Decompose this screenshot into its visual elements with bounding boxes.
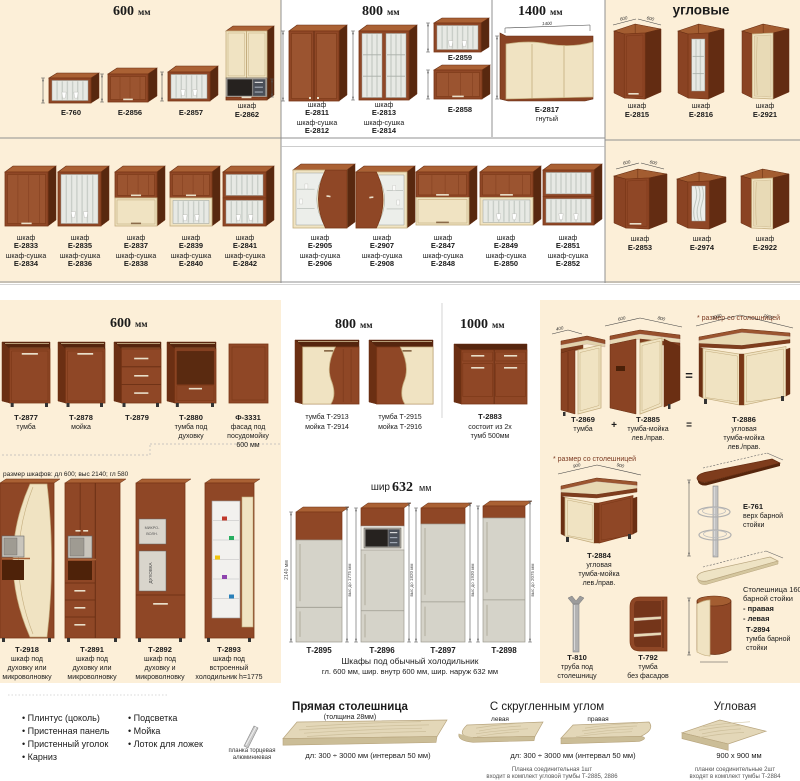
svg-text:Е-2859: Е-2859 [448, 53, 472, 62]
svg-text:мм: мм [492, 320, 505, 330]
svg-text:=: = [685, 368, 693, 383]
svg-text:шкаф под: шкаф под [144, 656, 176, 663]
svg-text:- правая: - правая [743, 604, 774, 613]
svg-text:* размер со столешницей: * размер со столешницей [553, 455, 636, 463]
svg-text:Ф-3331: Ф-3331 [235, 413, 261, 422]
svg-text:800: 800 [335, 317, 356, 332]
svg-text:верх барной: верх барной [743, 512, 783, 520]
svg-text:Е-2848: Е-2848 [431, 259, 455, 268]
svg-text:дл: 300 ÷ 3000 мм (интервал 50: дл: 300 ÷ 3000 мм (интервал 50 мм) [510, 751, 636, 760]
svg-text:Т-2884: Т-2884 [587, 551, 612, 560]
svg-text:Т-2918: Т-2918 [15, 645, 39, 654]
svg-text:Е-2905: Е-2905 [308, 241, 332, 250]
svg-text:Е-2812: Е-2812 [305, 126, 329, 135]
svg-text:лев./прав.: лев./прав. [632, 435, 665, 442]
svg-text:микроволновку: микроволновку [67, 674, 117, 681]
svg-text:Т-2898: Т-2898 [491, 646, 517, 655]
svg-text:Т-2894: Т-2894 [746, 625, 771, 634]
svg-text:духовку или: духовку или [7, 665, 46, 672]
svg-text:600: 600 [113, 4, 134, 19]
svg-text:входят в комплект тумбы Т-2884: входят в комплект тумбы Т-2884 [690, 774, 782, 780]
svg-text:входит в комплект угловой тумб: входит в комплект угловой тумбы Т-2885, … [486, 773, 618, 780]
svg-text:Т-810: Т-810 [567, 653, 587, 662]
svg-text:барной стойки: барной стойки [743, 594, 793, 603]
svg-text:Планка соединительная 1шт: Планка соединительная 1шт [512, 767, 593, 773]
svg-text:без фасадов: без фасадов [627, 672, 669, 680]
svg-text:мойка Т-2914: мойка Т-2914 [305, 423, 349, 431]
svg-text:выс до 2075 мм: выс до 2075 мм [530, 564, 535, 597]
svg-text:выс до 1930 мм: выс до 1930 мм [470, 564, 475, 597]
svg-text:Е-2837: Е-2837 [124, 241, 148, 250]
svg-text:тумба Т-2915: тумба Т-2915 [378, 413, 421, 421]
svg-text:шкаф под: шкаф под [213, 656, 245, 663]
svg-text:шкаф: шкаф [238, 103, 257, 110]
svg-text:шир: шир [371, 482, 391, 493]
svg-text:• Карниз: • Карниз [22, 752, 57, 762]
svg-text:С скругленным углом: С скругленным углом [490, 701, 604, 713]
svg-text:Е-2841: Е-2841 [233, 241, 257, 250]
svg-text:тумба-мойка: тумба-мойка [627, 425, 668, 433]
svg-text:Е-2921: Е-2921 [753, 110, 777, 119]
svg-text:Т-2885: Т-2885 [636, 415, 660, 424]
svg-text:Т-2892: Т-2892 [148, 645, 172, 654]
svg-text:Е-2839: Е-2839 [179, 241, 203, 250]
svg-text:шкаф: шкаф [756, 236, 775, 243]
svg-text:тумба: тумба [573, 425, 592, 433]
svg-text:холодильник h=1775: холодильник h=1775 [195, 674, 262, 681]
svg-text:Е-2849: Е-2849 [494, 241, 518, 250]
svg-text:мм: мм [135, 319, 148, 329]
svg-text:состоит из 2х: состоит из 2х [468, 424, 512, 431]
svg-text:1400: 1400 [518, 4, 546, 19]
svg-text:900 x 900 мм: 900 x 900 мм [716, 751, 761, 760]
svg-text:микроволновку: микроволновку [2, 674, 52, 681]
svg-text:Т-2893: Т-2893 [217, 645, 241, 654]
svg-text:ВОЛН.: ВОЛН. [146, 532, 158, 536]
svg-text:Е-2852: Е-2852 [556, 259, 580, 268]
svg-text:Прямая столешница: Прямая столешница [292, 701, 408, 713]
svg-text:Т-2886: Т-2886 [732, 415, 756, 424]
svg-text:Е-2840: Е-2840 [179, 259, 203, 268]
svg-text:1000: 1000 [460, 317, 488, 332]
svg-text:мойка: мойка [71, 423, 91, 431]
svg-text:Е-761: Е-761 [743, 502, 763, 511]
svg-text:• Мойка: • Мойка [128, 726, 160, 736]
svg-text:планка торцевая: планка торцевая [229, 748, 276, 754]
svg-text:Е-2811: Е-2811 [305, 108, 329, 117]
svg-text:духовку или: духовку или [72, 665, 111, 672]
svg-text:ДУХОВКА: ДУХОВКА [148, 563, 153, 584]
svg-text:шкаф под: шкаф под [76, 656, 108, 663]
svg-text:шкаф: шкаф [756, 103, 775, 110]
svg-text:шкаф: шкаф [693, 236, 712, 243]
svg-text:тумба: тумба [638, 663, 657, 671]
svg-text:шкаф: шкаф [628, 103, 647, 110]
svg-text:гнутый: гнутый [536, 115, 558, 123]
svg-text:Е-2834: Е-2834 [14, 259, 39, 268]
svg-text:• Лоток для ложек: • Лоток для ложек [128, 739, 203, 749]
svg-text:1400: 1400 [542, 21, 553, 26]
svg-text:микроволновку: микроволновку [135, 674, 185, 681]
svg-text:Е-2853: Е-2853 [628, 243, 652, 252]
svg-text:Е-2847: Е-2847 [431, 241, 455, 250]
svg-text:Е-760: Е-760 [61, 108, 81, 117]
svg-text:тумба под: тумба под [175, 423, 208, 431]
svg-text:Е-2813: Е-2813 [372, 108, 396, 117]
svg-text:632: 632 [392, 480, 413, 495]
svg-text:Е-2851: Е-2851 [556, 241, 580, 250]
svg-text:600: 600 [110, 316, 131, 331]
svg-text:планки соединительные 2шт: планки соединительные 2шт [695, 767, 775, 773]
svg-text:встроенный: встроенный [210, 664, 249, 672]
svg-text:Е-2835: Е-2835 [68, 241, 92, 250]
svg-text:Шкафы под обычный холодильник: Шкафы под обычный холодильник [342, 656, 479, 666]
svg-text:- левая: - левая [743, 614, 769, 623]
svg-text:2140 мм: 2140 мм [284, 560, 290, 580]
svg-text:алюминиевая: алюминиевая [233, 755, 271, 761]
svg-text:Е-2862: Е-2862 [235, 110, 259, 119]
svg-text:мойка Т-2916: мойка Т-2916 [378, 423, 422, 431]
svg-text:Угловая: Угловая [714, 701, 757, 713]
svg-text:Е-2833: Е-2833 [14, 241, 38, 250]
svg-text:труба под: труба под [561, 663, 593, 671]
svg-text:размер шкафов: дл 600; выс 2: размер шкафов: дл 600; выс 2140; гл 580 [3, 471, 129, 478]
svg-text:Т-792: Т-792 [638, 653, 658, 662]
svg-text:Е-2974: Е-2974 [690, 243, 715, 252]
svg-text:Е-2858: Е-2858 [448, 105, 472, 114]
svg-text:духовку: духовку [178, 433, 204, 440]
svg-text:Е-2907: Е-2907 [370, 241, 394, 250]
svg-text:мм: мм [360, 320, 373, 330]
svg-text:выс до 1820 мм: выс до 1820 мм [409, 564, 414, 597]
svg-text:стойки: стойки [746, 644, 767, 652]
svg-text:фасад под: фасад под [231, 424, 266, 431]
svg-text:шкаф: шкаф [631, 236, 650, 243]
svg-text:• Пристенная панель: • Пристенная панель [22, 726, 110, 736]
svg-text:дл: 300 ÷ 3000 мм (интервал 50: дл: 300 ÷ 3000 мм (интервал 50 мм) [305, 751, 431, 760]
svg-text:угловые: угловые [673, 3, 730, 18]
svg-text:тумба барной: тумба барной [746, 635, 791, 643]
svg-text:Т-2883: Т-2883 [478, 412, 502, 421]
svg-text:Столешница 1600: Столешница 1600 [743, 585, 800, 594]
svg-text:столешницу: столешницу [557, 673, 597, 680]
svg-text:Е-2922: Е-2922 [753, 243, 777, 252]
svg-text:гл. 600 мм, шир. внутр 600: гл. 600 мм, шир. внутр 600 мм, шир. нару… [322, 667, 498, 676]
svg-text:Е-2906: Е-2906 [308, 259, 332, 268]
svg-text:=: = [686, 420, 692, 431]
svg-text:МИКРО-: МИКРО- [145, 526, 161, 530]
svg-text:тумба: тумба [16, 423, 35, 431]
svg-text:мм: мм [138, 7, 151, 17]
svg-text:шкаф: шкаф [692, 103, 711, 110]
svg-text:шкаф под: шкаф под [11, 656, 43, 663]
svg-text:Е-2817: Е-2817 [535, 105, 559, 114]
svg-text:Е-2838: Е-2838 [124, 259, 148, 268]
svg-text:лев./прав.: лев./прав. [728, 444, 761, 451]
svg-text:мм: мм [550, 7, 563, 17]
svg-text:тумба-мойка: тумба-мойка [578, 570, 619, 578]
svg-text:тумба-мойка: тумба-мойка [723, 434, 764, 442]
svg-text:• Пристенный уголок: • Пристенный уголок [22, 739, 108, 749]
svg-text:Е-2908: Е-2908 [370, 259, 394, 268]
svg-text:стойки: стойки [743, 521, 764, 529]
svg-text:тумба Т-2913: тумба Т-2913 [305, 413, 348, 421]
svg-text:Е-2842: Е-2842 [233, 259, 257, 268]
svg-text:Т-2895: Т-2895 [306, 646, 332, 655]
svg-text:левая: левая [491, 716, 509, 723]
svg-text:выс до 1775 мм: выс до 1775 мм [347, 564, 352, 597]
svg-text:Е-2850: Е-2850 [494, 259, 518, 268]
svg-text:Е-2815: Е-2815 [625, 110, 649, 119]
svg-text:угловая: угловая [731, 426, 756, 433]
svg-text:духовку и: духовку и [144, 665, 175, 672]
svg-text:Т-2869: Т-2869 [571, 415, 595, 424]
svg-text:мм: мм [387, 7, 400, 17]
svg-text:Т-2878: Т-2878 [69, 413, 93, 422]
svg-text:Т-2880: Т-2880 [179, 413, 203, 422]
svg-text:(толщина 28мм): (толщина 28мм) [324, 714, 376, 721]
svg-text:800: 800 [362, 4, 383, 19]
svg-text:посудомойку: посудомойку [227, 432, 269, 440]
svg-text:• Подсветка: • Подсветка [128, 713, 177, 723]
svg-text:Т-2891: Т-2891 [80, 645, 104, 654]
svg-text:Т-2877: Т-2877 [14, 413, 38, 422]
svg-text:Е-2814: Е-2814 [372, 126, 397, 135]
svg-text:Т-2879: Т-2879 [125, 413, 149, 422]
svg-text:тумб 500мм: тумб 500мм [471, 432, 510, 440]
svg-text:Т-2897: Т-2897 [430, 646, 456, 655]
svg-text:мм: мм [419, 483, 431, 493]
svg-text:угловая: угловая [586, 562, 611, 569]
svg-text:Е-2836: Е-2836 [68, 259, 92, 268]
svg-text:600 мм: 600 мм [236, 442, 259, 449]
svg-text:+: + [611, 420, 617, 431]
svg-text:Е-2816: Е-2816 [689, 110, 713, 119]
svg-text:Е-2856: Е-2856 [118, 108, 142, 117]
svg-text:Е-2857: Е-2857 [179, 108, 203, 117]
svg-text:Т-2896: Т-2896 [369, 646, 395, 655]
svg-text:лев./прав.: лев./прав. [583, 580, 616, 587]
svg-text:• Плинтус (цоколь): • Плинтус (цоколь) [22, 713, 100, 723]
svg-text:правая: правая [587, 716, 609, 723]
